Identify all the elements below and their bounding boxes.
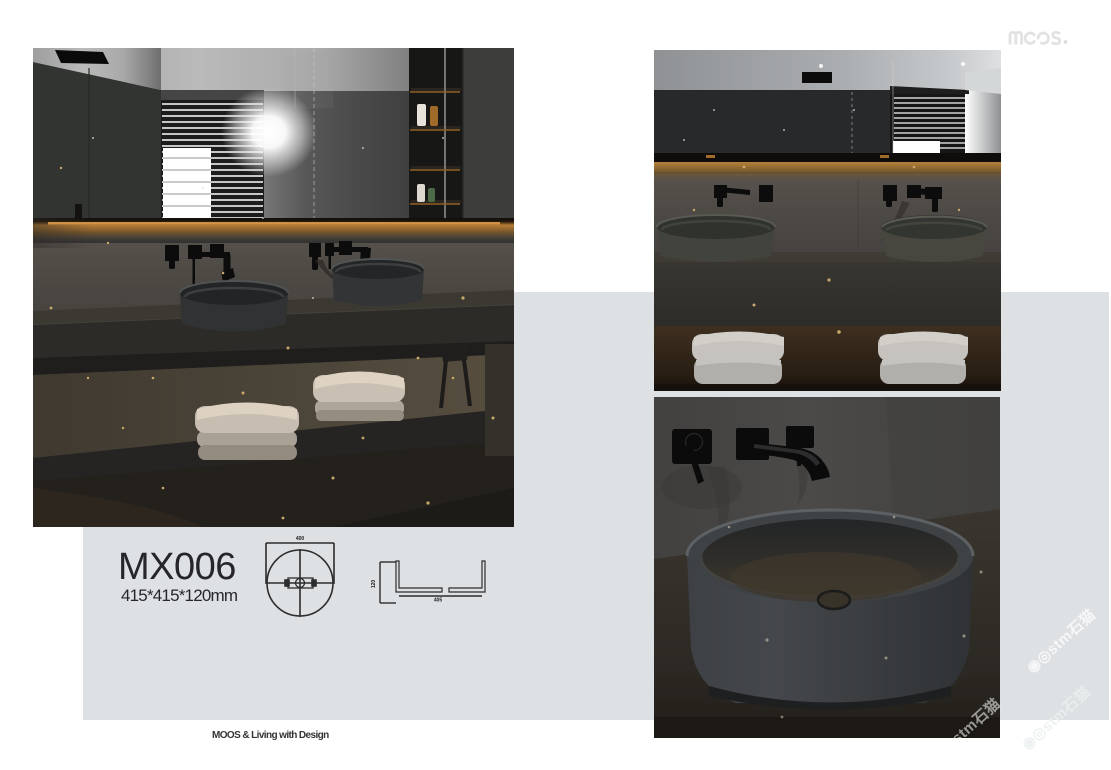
svg-text:400: 400	[296, 536, 305, 542]
svg-text:405: 405	[434, 598, 443, 604]
svg-text:120: 120	[371, 580, 377, 589]
